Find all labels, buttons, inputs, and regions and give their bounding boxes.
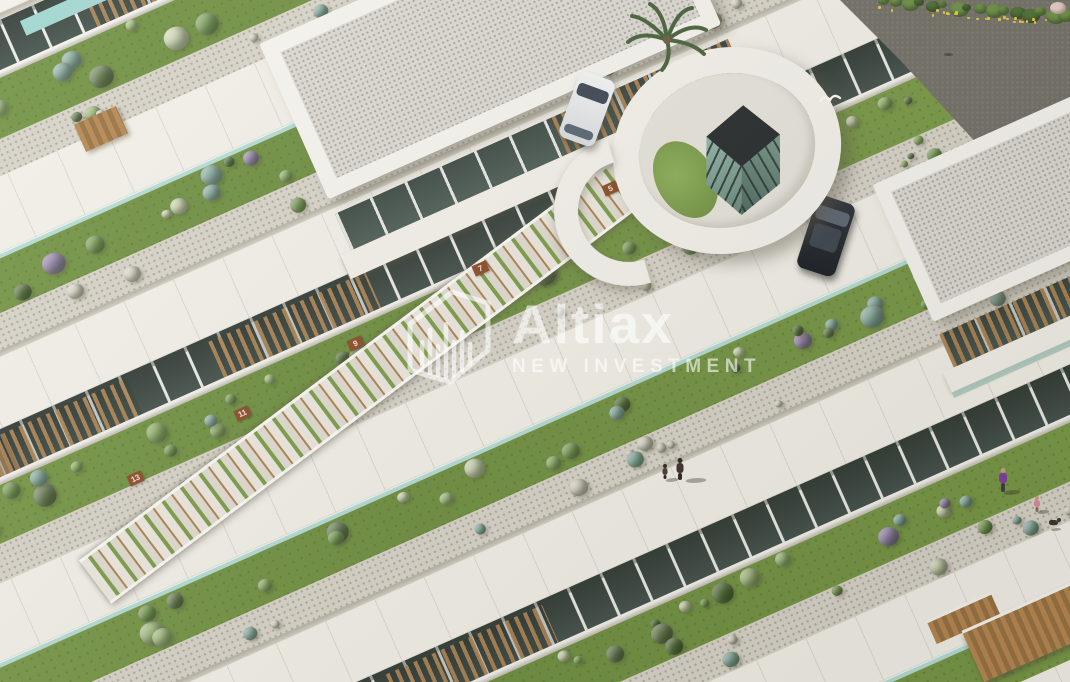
yellow-flowers: [976, 18, 979, 21]
yellow-flowers: [967, 17, 970, 20]
yellow-flowers: [1019, 20, 1022, 23]
bush: [732, 345, 746, 359]
rock: [65, 281, 87, 302]
bush: [461, 456, 487, 482]
rock: [121, 263, 143, 284]
bush: [124, 18, 139, 32]
bush: [473, 522, 488, 536]
bush: [0, 97, 10, 118]
yellow-flowers: [878, 6, 881, 9]
bush: [83, 233, 107, 257]
bush: [875, 523, 902, 549]
bush: [958, 493, 975, 509]
bush: [438, 490, 455, 507]
yellow-flowers: [1032, 18, 1035, 21]
bush: [572, 655, 584, 666]
yellow-flowers: [936, 9, 939, 12]
yellow-flowers: [1006, 18, 1009, 21]
rock: [666, 440, 676, 450]
bush: [603, 642, 627, 665]
hedge-bush: [914, 0, 924, 6]
bush: [830, 584, 844, 597]
bush: [891, 512, 908, 529]
hedge-bush: [1034, 7, 1046, 16]
bush: [544, 453, 564, 472]
bush: [200, 182, 223, 204]
yellow-flowers: [1013, 21, 1016, 24]
bush: [222, 155, 236, 169]
bush: [556, 649, 571, 663]
hedge-bush: [938, 1, 947, 8]
bush: [677, 599, 693, 614]
flowering-bush: [1050, 2, 1066, 14]
bird-icon: [818, 92, 842, 106]
child-pink: [1034, 496, 1040, 512]
bush: [263, 373, 276, 386]
rock: [726, 633, 739, 646]
yellow-flowers: [1021, 21, 1024, 24]
windshield: [575, 82, 610, 105]
bush: [396, 490, 411, 504]
bush: [729, 361, 742, 374]
bush: [86, 62, 117, 92]
bush: [161, 23, 193, 54]
bush: [162, 442, 179, 459]
rear-window: [563, 123, 594, 142]
bush: [39, 249, 69, 278]
yellow-flowers: [932, 14, 935, 17]
yellow-flowers: [1003, 16, 1006, 19]
hedge-bush: [962, 4, 971, 11]
adult-walking: [676, 458, 684, 480]
bush: [1011, 515, 1022, 526]
bush: [708, 579, 737, 607]
yellow-flowers: [1034, 21, 1037, 24]
yellow-flowers: [948, 13, 951, 16]
yellow-flowers: [1014, 17, 1017, 20]
yellow-flowers: [943, 11, 946, 14]
bush: [240, 148, 261, 168]
hedge-bush: [890, 0, 902, 7]
yellow-flowers: [1045, 19, 1048, 22]
bush: [0, 522, 2, 538]
bush: [736, 565, 763, 591]
yellow-flowers: [891, 9, 894, 12]
bush: [772, 549, 792, 569]
rock: [270, 619, 281, 629]
bush: [69, 460, 84, 475]
hedge-bush: [878, 0, 889, 5]
yellow-flowers: [987, 17, 990, 20]
rock: [774, 399, 784, 409]
bush: [223, 392, 238, 406]
child-walking: [662, 464, 668, 479]
hedge-bush: [998, 6, 1009, 15]
bush: [720, 649, 742, 670]
yellow-flowers: [998, 18, 1001, 21]
bird-shadow: [944, 53, 953, 56]
bush: [560, 440, 583, 462]
bush: [0, 479, 23, 502]
bush: [164, 590, 187, 612]
circular-entrance-pavilion: [612, 48, 842, 253]
bush: [844, 114, 859, 129]
aerial-development-render: Altiax NEW INVESTMENT 5791113: [0, 0, 1070, 682]
rock: [567, 475, 591, 498]
bush: [699, 597, 711, 609]
rock: [553, 306, 565, 318]
rock: [1063, 505, 1070, 517]
bush: [875, 94, 894, 112]
bush: [143, 419, 171, 446]
bush: [256, 577, 275, 595]
walker-purple-shirt: [998, 468, 1007, 492]
bush: [241, 625, 259, 642]
small-dog: [1049, 520, 1058, 525]
roadside-hedge: [878, 0, 1070, 34]
palm-tree: [622, 0, 712, 78]
bush: [902, 95, 914, 107]
